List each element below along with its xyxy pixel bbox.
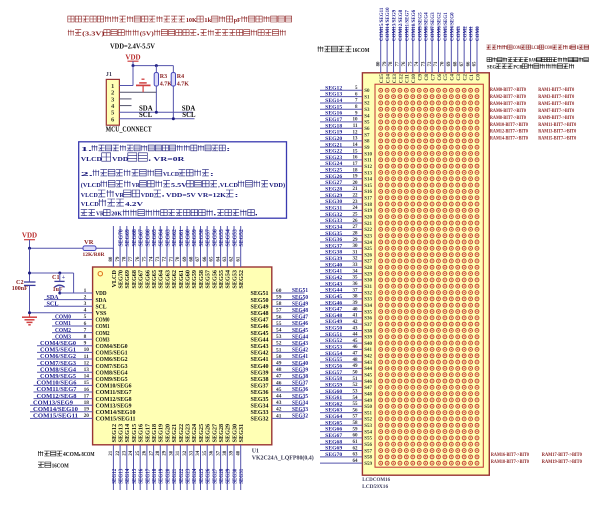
svg-text:38: 38 <box>223 450 228 456</box>
svg-text:10K: 10K <box>186 17 197 24</box>
svg-text:79: 79 <box>383 61 388 66</box>
svg-text:VLCD: VLCD <box>81 192 98 199</box>
svg-text:S55: S55 <box>364 437 372 442</box>
svg-text:COM13/SEG9: COM13/SEG9 <box>393 9 398 41</box>
svg-text:SEG51: SEG51 <box>325 332 342 338</box>
svg-text:S50: S50 <box>364 405 372 410</box>
svg-text:SEG44: SEG44 <box>325 288 342 294</box>
svg-text:S0: S0 <box>364 89 370 94</box>
svg-text:RAM3-BIT7->BIT0: RAM3-BIT7->BIT0 <box>538 95 574 100</box>
svg-text:31: 31 <box>353 250 359 255</box>
svg-text:39: 39 <box>230 450 235 456</box>
svg-text:SEG29: SEG29 <box>226 469 232 484</box>
svg-text:S49: S49 <box>364 399 372 404</box>
svg-text:C9: C9 <box>418 74 424 81</box>
svg-text:COM5/SEG1: COM5/SEG1 <box>444 12 449 41</box>
svg-text:3: 3 <box>84 301 87 307</box>
svg-text:35: 35 <box>353 276 359 281</box>
svg-text:COM15/SEG11: COM15/SEG11 <box>33 414 78 420</box>
svg-text:SEG40: SEG40 <box>325 262 342 268</box>
svg-text:VDD: VDD <box>112 156 128 163</box>
svg-text:COM7/SEG3: COM7/SEG3 <box>40 361 76 367</box>
svg-text:S36: S36 <box>364 317 372 322</box>
svg-text:19: 19 <box>353 175 359 180</box>
svg-text:SEG25: SEG25 <box>325 168 342 174</box>
svg-text:SEG70: SEG70 <box>119 229 125 246</box>
svg-text:4COM: 4COM <box>63 451 79 458</box>
svg-text:S35: S35 <box>364 310 372 315</box>
svg-text:SEG36: SEG36 <box>325 237 342 243</box>
svg-text::: : <box>235 192 239 199</box>
svg-text:18: 18 <box>84 400 90 406</box>
svg-text:8COM: 8COM <box>81 451 94 458</box>
svg-text:S8: S8 <box>364 140 370 145</box>
svg-text:COM2: COM2 <box>55 328 71 334</box>
svg-text:SEG26: SEG26 <box>206 469 212 484</box>
svg-text:22: 22 <box>353 194 359 199</box>
svg-text:SEG48: SEG48 <box>292 308 308 314</box>
svg-text:SEG36: SEG36 <box>292 387 308 393</box>
svg-text:20K: 20K <box>111 211 123 218</box>
svg-text:55: 55 <box>353 402 359 407</box>
svg-text:4: 4 <box>84 308 87 314</box>
svg-text:RAM0-BIT7->BIT0: RAM0-BIT7->BIT0 <box>490 88 526 93</box>
svg-text:S56: S56 <box>364 443 372 448</box>
svg-text:S38: S38 <box>364 329 372 334</box>
svg-text:VR=0R: VR=0R <box>153 156 184 163</box>
svg-text:S11: S11 <box>364 159 372 164</box>
svg-text:RAM7-BIT7->BIT0: RAM7-BIT7->BIT0 <box>538 109 574 114</box>
svg-text:SEG45: SEG45 <box>292 328 308 334</box>
svg-text:RAM14-BIT7->BIT0: RAM14-BIT7->BIT0 <box>490 137 528 142</box>
svg-text:51: 51 <box>276 347 282 353</box>
svg-text:C2: C2 <box>462 74 468 81</box>
svg-text:SEG34: SEG34 <box>325 224 342 230</box>
svg-text:VDD: VDD <box>22 232 37 240</box>
svg-text:SEG67: SEG67 <box>139 229 145 246</box>
svg-text:SEG61: SEG61 <box>179 229 185 246</box>
svg-text:8: 8 <box>84 334 87 340</box>
svg-text:COM3: COM3 <box>457 26 462 41</box>
svg-text:COM6/SEG2: COM6/SEG2 <box>40 354 76 360</box>
svg-text:73: 73 <box>421 61 426 66</box>
svg-text:SEG30: SEG30 <box>325 199 342 205</box>
svg-text:30: 30 <box>353 244 359 249</box>
svg-text:S15: S15 <box>364 184 372 189</box>
svg-text:4.7K: 4.7K <box>177 82 190 88</box>
svg-text:RAM18-BIT7->BIT0: RAM18-BIT7->BIT0 <box>491 460 529 465</box>
svg-text:SEG37: SEG37 <box>325 243 342 249</box>
svg-text:SEG39: SEG39 <box>292 367 308 373</box>
svg-text:RAM1-BIT7->BIT0: RAM1-BIT7->BIT0 <box>538 88 574 93</box>
svg-text:pF: pF <box>234 17 241 24</box>
svg-text:COM13/SEG9: COM13/SEG9 <box>33 400 73 406</box>
svg-text:VLCD: VLCD <box>163 171 179 178</box>
svg-text:SEG31: SEG31 <box>238 424 245 443</box>
svg-text:RAM8-BIT7->BIT0: RAM8-BIT7->BIT0 <box>490 116 526 121</box>
svg-text:SEG49: SEG49 <box>292 301 308 307</box>
svg-text:SEG62: SEG62 <box>172 229 178 246</box>
svg-text:70: 70 <box>441 61 446 66</box>
svg-text:16COM: 16COM <box>352 47 370 54</box>
svg-text:32: 32 <box>183 450 188 456</box>
svg-text:4.2V: 4.2V <box>125 201 143 208</box>
svg-text:S44: S44 <box>364 367 372 372</box>
svg-text:48: 48 <box>353 358 359 363</box>
svg-text:28: 28 <box>156 450 161 456</box>
svg-text:J1: J1 <box>106 71 112 78</box>
svg-text:S2: S2 <box>364 102 370 107</box>
svg-text:13: 13 <box>84 367 90 373</box>
svg-text:SEG15: SEG15 <box>325 104 342 110</box>
svg-text:C1: C1 <box>469 74 475 81</box>
svg-text:78: 78 <box>389 61 394 66</box>
svg-text:47: 47 <box>276 374 282 380</box>
svg-text:44: 44 <box>276 394 282 400</box>
svg-text:25: 25 <box>136 450 141 456</box>
svg-text:S4: S4 <box>364 114 370 119</box>
svg-text:60: 60 <box>353 434 359 439</box>
svg-text:COM14/SEG10: COM14/SEG10 <box>386 7 391 41</box>
svg-text:24: 24 <box>353 206 359 211</box>
svg-text:COM12/SEG8: COM12/SEG8 <box>399 9 404 41</box>
svg-text:COM15/SEG11: COM15/SEG11 <box>380 7 385 41</box>
svg-text:COM15/SEG11: COM15/SEG11 <box>96 416 136 423</box>
svg-text:S24: S24 <box>364 241 372 246</box>
svg-text:SEG66: SEG66 <box>325 427 342 433</box>
svg-text:SEG59: SEG59 <box>192 229 198 246</box>
svg-text:24: 24 <box>129 450 134 456</box>
svg-text:S23: S23 <box>364 234 372 239</box>
svg-text:(5V): (5V) <box>140 31 154 38</box>
svg-text:32: 32 <box>353 257 359 262</box>
svg-text:39: 39 <box>353 301 359 306</box>
svg-text:S37: S37 <box>364 323 372 328</box>
svg-text:SEG26: SEG26 <box>325 174 342 180</box>
svg-text:SEG24: SEG24 <box>325 161 342 167</box>
svg-text:SEG70: SEG70 <box>325 452 342 458</box>
svg-text:S31: S31 <box>364 285 372 290</box>
svg-text:80: 80 <box>376 61 381 66</box>
svg-text:SEG28: SEG28 <box>219 469 225 484</box>
svg-text:RAM10-BIT7->BIT0: RAM10-BIT7->BIT0 <box>490 123 528 128</box>
svg-text:55: 55 <box>276 321 282 327</box>
svg-text:SEG57: SEG57 <box>206 229 212 246</box>
svg-text:LCD: LCD <box>531 46 539 51</box>
svg-text:C14: C14 <box>385 74 391 84</box>
svg-text:72: 72 <box>428 61 433 66</box>
svg-text:SEG69: SEG69 <box>325 446 342 452</box>
svg-text:S57: S57 <box>364 449 372 454</box>
svg-text:C2: C2 <box>16 279 24 286</box>
svg-text:VDD=5V VR=12K: VDD=5V VR=12K <box>166 192 227 199</box>
svg-text:VLCD: VLCD <box>81 156 102 163</box>
svg-text:SEG13: SEG13 <box>119 469 125 484</box>
svg-text:SEG23: SEG23 <box>186 469 192 484</box>
svg-text:(VLCD: (VLCD <box>81 182 101 189</box>
svg-text:SEG42: SEG42 <box>292 348 308 354</box>
svg-text:C5: C5 <box>443 74 449 81</box>
svg-text:COM4/SEG0: COM4/SEG0 <box>450 12 455 41</box>
svg-text:61: 61 <box>353 440 359 445</box>
svg-text:R4: R4 <box>177 74 184 80</box>
svg-text:SEG39: SEG39 <box>325 256 342 262</box>
svg-text:VR: VR <box>115 192 124 199</box>
svg-text::: : <box>226 146 230 153</box>
svg-text:(3.3V): (3.3V) <box>82 31 104 38</box>
svg-text:56: 56 <box>353 408 359 413</box>
svg-text:RAM12-BIT7->BIT0: RAM12-BIT7->BIT0 <box>490 130 528 135</box>
svg-text:+: + <box>62 275 66 281</box>
svg-text:SEG18: SEG18 <box>325 123 342 129</box>
svg-text:COM8/SEG4: COM8/SEG4 <box>425 12 430 41</box>
svg-text:41: 41 <box>353 314 359 319</box>
svg-text:54: 54 <box>276 328 282 334</box>
svg-text:1.: 1. <box>81 146 93 153</box>
svg-text:S1: S1 <box>364 95 370 100</box>
svg-text:C7: C7 <box>430 74 436 81</box>
svg-text:MCU_CONNECT: MCU_CONNECT <box>106 127 152 134</box>
svg-text:C15: C15 <box>379 74 385 84</box>
svg-text:1uF: 1uF <box>53 287 63 293</box>
svg-text:2.: 2. <box>81 171 94 178</box>
svg-text:SEG31: SEG31 <box>325 205 342 211</box>
svg-text:C13: C13 <box>392 74 398 84</box>
svg-text:SEG40: SEG40 <box>292 361 308 367</box>
svg-text:49: 49 <box>353 364 359 369</box>
svg-text:28: 28 <box>353 231 359 236</box>
svg-text:S41: S41 <box>364 348 372 353</box>
svg-text:63: 63 <box>353 453 359 458</box>
svg-text:S3: S3 <box>364 108 370 113</box>
svg-text:25: 25 <box>353 213 359 218</box>
svg-text:42: 42 <box>276 407 282 413</box>
svg-text:SEG28: SEG28 <box>325 187 342 193</box>
svg-text:SEG25: SEG25 <box>199 469 205 484</box>
svg-text:37: 37 <box>216 450 221 456</box>
svg-text:SEG51: SEG51 <box>292 288 308 294</box>
svg-text:56: 56 <box>276 314 282 320</box>
svg-text:S52: S52 <box>364 418 372 423</box>
svg-text:S19: S19 <box>364 209 372 214</box>
svg-text:65: 65 <box>473 61 478 66</box>
svg-text:SEG12: SEG12 <box>325 85 342 91</box>
svg-text:SEG57: SEG57 <box>325 370 342 376</box>
svg-text:SEG45: SEG45 <box>325 294 342 300</box>
svg-text:COM1: COM1 <box>55 321 71 327</box>
svg-text:9: 9 <box>84 341 87 347</box>
svg-text:16COM: 16COM <box>52 463 69 470</box>
svg-text:SEG32: SEG32 <box>325 212 342 218</box>
svg-text:15: 15 <box>353 149 359 154</box>
svg-text:SEG35: SEG35 <box>325 231 342 237</box>
svg-text:30: 30 <box>169 450 174 456</box>
svg-text:SEG53: SEG53 <box>232 229 238 246</box>
svg-text:SEG21: SEG21 <box>172 469 178 484</box>
svg-text:15: 15 <box>84 380 90 386</box>
svg-text:SEG20: SEG20 <box>325 136 342 142</box>
svg-text:VK2C24A_LQFP80(0,4): VK2C24A_LQFP80(0,4) <box>252 454 314 461</box>
svg-text:53: 53 <box>276 334 282 340</box>
svg-text:S17: S17 <box>364 197 372 202</box>
svg-text:SEG52: SEG52 <box>239 229 245 246</box>
svg-text:1k: 1k <box>204 17 211 24</box>
svg-text:16: 16 <box>84 387 90 393</box>
svg-text:SEG60: SEG60 <box>186 229 192 246</box>
svg-text:SEG52: SEG52 <box>325 338 342 344</box>
svg-text:RAM11-BIT7->BIT0: RAM11-BIT7->BIT0 <box>538 123 576 128</box>
svg-text:52: 52 <box>353 383 359 388</box>
svg-text:SEG34: SEG34 <box>292 400 308 406</box>
svg-text:S48: S48 <box>364 392 372 397</box>
svg-text:21: 21 <box>109 450 114 456</box>
svg-text:41: 41 <box>276 413 282 419</box>
svg-text:31: 31 <box>176 450 181 456</box>
svg-text:SEG14: SEG14 <box>125 469 131 484</box>
svg-text:U1: U1 <box>252 449 259 455</box>
svg-text:40: 40 <box>236 450 241 456</box>
svg-text:2: 2 <box>84 294 87 300</box>
svg-text:62: 62 <box>353 446 359 451</box>
svg-text:SEG29: SEG29 <box>325 193 342 199</box>
svg-text:S40: S40 <box>364 342 372 347</box>
svg-text:4.7K: 4.7K <box>160 82 173 88</box>
svg-text:VDD: VDD <box>141 192 154 199</box>
svg-text:14: 14 <box>84 374 90 380</box>
svg-text:75: 75 <box>409 61 414 66</box>
svg-text:S30: S30 <box>364 279 372 284</box>
svg-text:77: 77 <box>396 61 401 66</box>
svg-text:RAM9-BIT7->BIT0: RAM9-BIT7->BIT0 <box>538 116 574 121</box>
svg-text:59: 59 <box>353 427 359 432</box>
svg-text:7: 7 <box>84 327 87 333</box>
svg-text:S5: S5 <box>364 121 370 126</box>
svg-text:S13: S13 <box>364 171 372 176</box>
svg-text:SEG50: SEG50 <box>325 326 342 332</box>
svg-text:38: 38 <box>353 295 359 300</box>
svg-text:SEG: SEG <box>487 66 496 71</box>
svg-text:SEG41: SEG41 <box>292 354 308 360</box>
svg-text:COM14/SEG10: COM14/SEG10 <box>33 407 78 413</box>
svg-text:COM10/SEG6: COM10/SEG6 <box>412 9 417 41</box>
svg-text:SEG17: SEG17 <box>325 117 342 123</box>
svg-text:COM: COM <box>513 46 521 51</box>
svg-text:22: 22 <box>116 450 121 456</box>
svg-text:1: 1 <box>84 288 87 294</box>
svg-text:SEG16: SEG16 <box>325 111 342 117</box>
svg-text:C4: C4 <box>450 74 456 81</box>
svg-text:34: 34 <box>353 269 359 274</box>
svg-text:COM10/SEG6: COM10/SEG6 <box>37 381 77 387</box>
svg-text:SEG37: SEG37 <box>292 381 308 387</box>
svg-text:14: 14 <box>353 143 359 148</box>
svg-text:S46: S46 <box>364 380 372 385</box>
svg-text:29: 29 <box>353 238 359 243</box>
svg-text:SEG23: SEG23 <box>325 155 342 161</box>
svg-text:VDD): VDD) <box>269 182 285 189</box>
svg-text:27: 27 <box>149 450 154 456</box>
svg-text:SCL: SCL <box>139 112 153 119</box>
svg-text:SCL: SCL <box>47 301 59 307</box>
svg-text:VDD=2.4V-5.5V: VDD=2.4V-5.5V <box>110 42 156 51</box>
svg-text:SEG41: SEG41 <box>325 269 342 275</box>
svg-text:58: 58 <box>353 421 359 426</box>
svg-text:S9: S9 <box>364 146 370 151</box>
svg-text:S7: S7 <box>364 133 370 138</box>
svg-text:C12: C12 <box>398 74 404 84</box>
svg-text:18: 18 <box>353 168 359 173</box>
svg-text:66: 66 <box>466 61 471 66</box>
svg-text:26: 26 <box>143 450 148 456</box>
svg-text:42: 42 <box>353 320 359 325</box>
svg-text:54: 54 <box>353 396 359 401</box>
svg-text:SEG56: SEG56 <box>212 229 218 246</box>
svg-text:SEG20: SEG20 <box>165 469 171 484</box>
svg-text:60: 60 <box>276 288 282 294</box>
svg-text:43: 43 <box>276 400 282 406</box>
svg-text:12: 12 <box>84 360 90 366</box>
svg-text:SEG67: SEG67 <box>325 433 342 439</box>
svg-text:S59: S59 <box>364 462 372 467</box>
svg-text:SCL: SCL <box>182 112 196 119</box>
svg-text:29: 29 <box>163 450 168 456</box>
svg-text:RAM: RAM <box>529 59 537 64</box>
svg-text:S22: S22 <box>364 228 372 233</box>
svg-text:SEG61: SEG61 <box>325 395 342 401</box>
svg-text:SEG53: SEG53 <box>325 345 342 351</box>
svg-text:S28: S28 <box>364 266 372 271</box>
svg-text:SEG49: SEG49 <box>325 319 342 325</box>
svg-text:36: 36 <box>210 450 215 456</box>
svg-text:COM9/SEG5: COM9/SEG5 <box>418 12 423 41</box>
svg-text:SEG69: SEG69 <box>125 229 131 246</box>
svg-text:C10: C10 <box>411 74 417 84</box>
svg-text:SEG68: SEG68 <box>132 229 138 246</box>
svg-text:5.5V: 5.5V <box>171 182 187 189</box>
svg-text:S12: S12 <box>364 165 372 170</box>
svg-text:SEG32: SEG32 <box>251 416 269 423</box>
svg-text:SEG56: SEG56 <box>325 363 342 369</box>
svg-text:COM12/SEG8: COM12/SEG8 <box>37 394 77 400</box>
svg-text:21: 21 <box>353 187 359 192</box>
svg-text:SEG33: SEG33 <box>325 218 342 224</box>
svg-text:46: 46 <box>276 380 282 386</box>
svg-text:64: 64 <box>353 459 359 464</box>
svg-text:VR: VR <box>132 182 140 189</box>
svg-text:SEG16: SEG16 <box>139 469 145 484</box>
svg-text:SEG24: SEG24 <box>192 469 198 484</box>
svg-text:SEG52: SEG52 <box>238 270 245 289</box>
svg-text:44: 44 <box>353 333 359 338</box>
svg-text:S45: S45 <box>364 374 372 379</box>
svg-text:COM5/SEG1: COM5/SEG1 <box>40 348 76 354</box>
svg-text:S39: S39 <box>364 336 372 341</box>
svg-text:COM8/SEG4: COM8/SEG4 <box>40 367 76 373</box>
svg-text:SEG68: SEG68 <box>325 439 342 445</box>
svg-text:SEG47: SEG47 <box>325 307 342 313</box>
svg-text:SEG59: SEG59 <box>325 382 342 388</box>
svg-text:S29: S29 <box>364 272 372 277</box>
svg-text:27: 27 <box>353 225 359 230</box>
svg-text:36: 36 <box>353 282 359 287</box>
svg-text:51: 51 <box>353 377 359 382</box>
svg-text:SEG38: SEG38 <box>292 374 308 380</box>
svg-text:69: 69 <box>447 61 452 66</box>
svg-text:SEG44: SEG44 <box>292 334 308 340</box>
svg-text:COM11/SEG7: COM11/SEG7 <box>37 387 77 393</box>
svg-text:RAM16-BIT7->BIT0: RAM16-BIT7->BIT0 <box>491 453 529 458</box>
svg-text:RAM15-BIT7->BIT0: RAM15-BIT7->BIT0 <box>538 137 576 142</box>
